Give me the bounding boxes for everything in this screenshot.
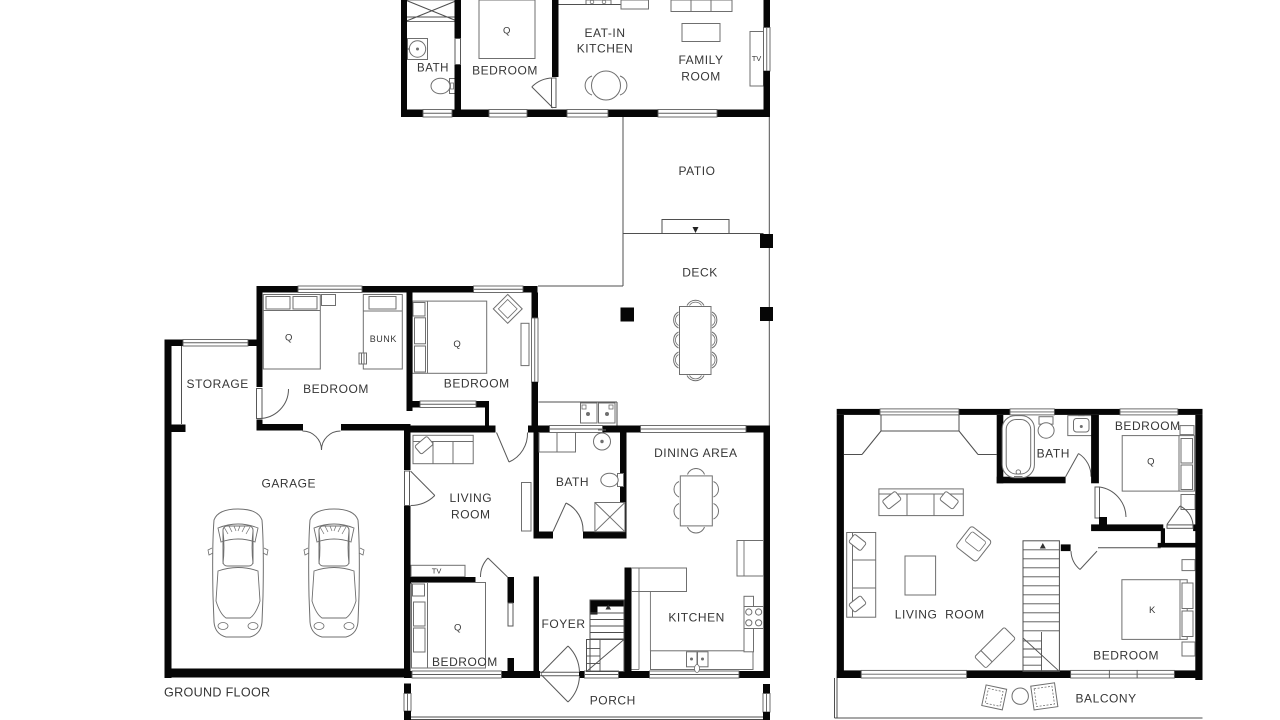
svg-text:BATH: BATH [1037, 446, 1070, 460]
svg-text:DECK: DECK [682, 266, 718, 280]
svg-text:BEDROOM: BEDROOM [1115, 419, 1181, 433]
svg-text:PATIO: PATIO [679, 164, 716, 178]
svg-text:BATH: BATH [556, 475, 589, 489]
svg-text:BEDROOM: BEDROOM [444, 376, 510, 390]
svg-text:BATH: BATH [417, 63, 449, 75]
svg-text:Q: Q [285, 333, 293, 344]
svg-text:ROOM: ROOM [681, 70, 721, 84]
svg-text:TV: TV [752, 54, 762, 63]
svg-text:BEDROOM: BEDROOM [432, 655, 498, 669]
svg-text:LIVING: LIVING [449, 491, 492, 505]
svg-text:Q: Q [1147, 456, 1155, 467]
svg-text:BEDROOM: BEDROOM [303, 382, 369, 396]
svg-text:BALCONY: BALCONY [1075, 692, 1136, 706]
svg-text:EAT-IN: EAT-IN [584, 26, 625, 40]
svg-text:Q: Q [454, 622, 462, 633]
svg-text:Q: Q [503, 26, 511, 37]
svg-text:K: K [1149, 605, 1156, 616]
svg-text:FAMILY: FAMILY [678, 53, 723, 67]
svg-text:BEDROOM: BEDROOM [1093, 648, 1159, 662]
svg-text:ROOM: ROOM [451, 507, 491, 521]
svg-text:BEDROOM: BEDROOM [472, 64, 538, 78]
svg-text:TV: TV [432, 567, 442, 576]
svg-text:BUNK: BUNK [370, 334, 397, 344]
svg-text:GARAGE: GARAGE [261, 476, 316, 490]
svg-text:FOYER: FOYER [541, 617, 585, 631]
svg-text:KITCHEN: KITCHEN [668, 611, 725, 625]
svg-text:Q: Q [453, 339, 461, 350]
svg-text:GROUND FLOOR: GROUND FLOOR [164, 686, 270, 700]
svg-text:STORAGE: STORAGE [187, 377, 249, 391]
svg-text:KITCHEN: KITCHEN [577, 42, 634, 56]
svg-text:PORCH: PORCH [590, 694, 636, 708]
svg-text:DINING AREA: DINING AREA [654, 446, 737, 460]
svg-text:LIVING ROOM: LIVING ROOM [895, 607, 985, 621]
